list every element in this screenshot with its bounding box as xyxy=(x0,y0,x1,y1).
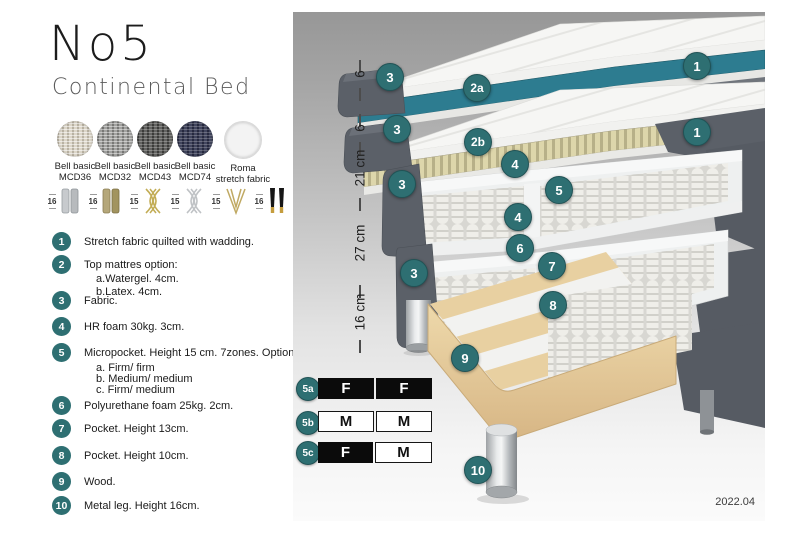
legend-item-3: 3 Fabric. xyxy=(52,291,118,310)
swatch-code: MCD32 xyxy=(95,172,136,183)
fabric-swatch-icon xyxy=(137,121,173,157)
firmness-cell: M xyxy=(376,411,432,432)
measure-tick xyxy=(359,340,361,353)
callout-7: 7 xyxy=(538,252,566,280)
page-title: No5 xyxy=(49,16,154,72)
leg-option-black-gold: 16 xyxy=(252,186,290,216)
callout-9: 9 xyxy=(451,344,479,372)
legend-item-2: 2 Top mattres option: xyxy=(52,255,178,274)
callout-3: 3 xyxy=(383,115,411,143)
legend-item-4: 4 HR foam 30kg. 3cm. xyxy=(52,317,184,336)
swatch-mcd43: Bell basicMCD43 xyxy=(135,121,175,185)
measure-tick xyxy=(359,198,361,211)
hairpin-leg-icon xyxy=(223,186,249,216)
measure-label-topper-b: 6 xyxy=(353,124,368,132)
callout-6: 6 xyxy=(506,234,534,262)
legend-number-badge: 1 xyxy=(52,232,71,251)
swatch-code: MCD36 xyxy=(55,172,96,183)
legend-text: Micropocket. Height 15 cm. 7zones. Optio… xyxy=(84,347,297,359)
callout-2a: 2a xyxy=(463,74,491,102)
callout-3: 3 xyxy=(400,259,428,287)
legend-text: Top mattres option: xyxy=(84,259,178,271)
legend-text: Polyurethane foam 25kg. 2cm. xyxy=(84,400,233,412)
firmness-row-5c: F M xyxy=(318,442,432,463)
legend-number-badge: 9 xyxy=(52,472,71,491)
legend-text: Metal leg. Height 16cm. xyxy=(84,500,200,512)
callout-4: 4 xyxy=(504,203,532,231)
gold-cross-leg-icon xyxy=(141,186,165,216)
swatch-mcd32: Bell basicMCD32 xyxy=(95,121,135,185)
swatch-name: Bell basic xyxy=(135,161,176,172)
firmness-row-label-5b: 5b xyxy=(296,411,320,435)
firmness-row-label-5a: 5a xyxy=(296,377,320,401)
firmness-cell: F xyxy=(376,378,432,399)
leg-height: 16 xyxy=(255,197,264,206)
legend-text: Pocket. Height 13cm. xyxy=(84,423,189,435)
callout-1: 1 xyxy=(683,118,711,146)
leg-height: 15 xyxy=(212,197,221,206)
callout-3: 3 xyxy=(376,63,404,91)
legend-number-badge: 6 xyxy=(52,396,71,415)
leg-options: 16 16 15 15 15 xyxy=(45,186,293,216)
callout-8: 8 xyxy=(539,291,567,319)
leg-height: 15 xyxy=(171,197,180,206)
leg-height: 16 xyxy=(48,197,57,206)
callout-5: 5 xyxy=(545,176,573,204)
callout-1: 1 xyxy=(683,52,711,80)
swatch-name: Bell basic xyxy=(95,161,136,172)
leg-option-brass-cylinder: 16 xyxy=(86,186,124,216)
product-sheet: No5 Continental Bed Bell basicMCD36 Bell… xyxy=(0,0,800,533)
legend-text: Wood. xyxy=(84,476,116,488)
swatch-name: Bell basic xyxy=(55,161,96,172)
measure-label-leg: 16 cm xyxy=(353,294,368,331)
legend-item-5: 5 Micropocket. Height 15 cm. 7zones. Opt… xyxy=(52,343,297,362)
firmness-row-5b: M M xyxy=(318,411,432,432)
legend-number-badge: 2 xyxy=(52,255,71,274)
fabric-swatch-icon xyxy=(57,121,93,157)
legend-subitem: c. Firm/ medium xyxy=(96,384,175,396)
legend-number-badge: 7 xyxy=(52,419,71,438)
firmness-cell: M xyxy=(375,442,432,463)
measure-label-lower: 27 cm xyxy=(353,225,368,262)
fabric-swatch-icon xyxy=(97,121,133,157)
legend-number-badge: 3 xyxy=(52,291,71,310)
callout-3: 3 xyxy=(388,170,416,198)
firmness-row-5a: F F xyxy=(318,378,432,399)
bed-diagram-panel: 6 6 21 cm 27 cm 16 cm 1 3 2a 3 2b 1 4 5 … xyxy=(293,12,765,521)
swatch-mcd36: Bell basicMCD36 xyxy=(55,121,95,185)
swatch-code: stretch fabric xyxy=(216,174,270,185)
silver-cross-leg-icon xyxy=(182,186,206,216)
leg-height: 16 xyxy=(89,197,98,206)
legend-item-8: 8 Pocket. Height 10cm. xyxy=(52,446,189,465)
legend-number-badge: 8 xyxy=(52,446,71,465)
leg-option-silver-cylinder: 16 xyxy=(45,186,83,216)
swatch-mcd74: Bell basicMCD74 xyxy=(175,121,215,185)
swatch-code: MCD74 xyxy=(175,172,216,183)
legend-item-1: 1 Stretch fabric quilted with wadding. xyxy=(52,232,254,251)
firmness-row-label-5c: 5c xyxy=(296,441,320,465)
callout-4: 4 xyxy=(501,150,529,178)
fabric-swatch-icon xyxy=(177,121,213,157)
legend-number-badge: 4 xyxy=(52,317,71,336)
callout-10: 10 xyxy=(464,456,492,484)
legend-item-10: 10 Metal leg. Height 16cm. xyxy=(52,496,200,515)
swatch-name: Bell basic xyxy=(175,161,216,172)
callout-2b: 2b xyxy=(464,128,492,156)
firmness-cell: M xyxy=(318,411,374,432)
legend-text: Pocket. Height 10cm. xyxy=(84,450,189,462)
legend-text: HR foam 30kg. 3cm. xyxy=(84,321,184,333)
measure-label-upper: 21 cm xyxy=(353,150,368,187)
back-right-leg xyxy=(700,390,714,432)
measure-tick xyxy=(359,88,361,101)
fabric-swatch-icon xyxy=(224,121,262,159)
measure-label-topper: 6 xyxy=(353,70,368,78)
swatch-name: Roma xyxy=(216,163,270,174)
legend-text: Stretch fabric quilted with wadding. xyxy=(84,236,254,248)
leg-option-gold-cross: 15 xyxy=(127,186,165,216)
legend-text: Fabric. xyxy=(84,295,118,307)
swatch-roma: Romastretch fabric xyxy=(215,121,271,185)
page-subtitle: Continental Bed xyxy=(52,75,251,100)
legend-item-6: 6 Polyurethane foam 25kg. 2cm. xyxy=(52,396,233,415)
legend-item-9: 9 Wood. xyxy=(52,472,116,491)
legend-number-badge: 5 xyxy=(52,343,71,362)
brass-cylinder-leg-icon xyxy=(100,186,124,216)
leg-height: 15 xyxy=(130,197,139,206)
leg-option-hairpin: 15 xyxy=(209,186,249,216)
legend-subitem: a.Watergel. 4cm. xyxy=(96,273,179,285)
silver-cylinder-leg-icon xyxy=(59,186,83,216)
swatch-code: MCD43 xyxy=(135,172,176,183)
firmness-cell: F xyxy=(318,442,373,463)
fabric-swatches: Bell basicMCD36 Bell basicMCD32 Bell bas… xyxy=(55,121,271,185)
leg-option-silver-cross: 15 xyxy=(168,186,206,216)
firmness-cell: F xyxy=(318,378,374,399)
version-date: 2022.04 xyxy=(715,496,755,508)
black-gold-leg-icon xyxy=(266,186,290,216)
legend-number-badge: 10 xyxy=(52,496,71,515)
legend-item-7: 7 Pocket. Height 13cm. xyxy=(52,419,189,438)
